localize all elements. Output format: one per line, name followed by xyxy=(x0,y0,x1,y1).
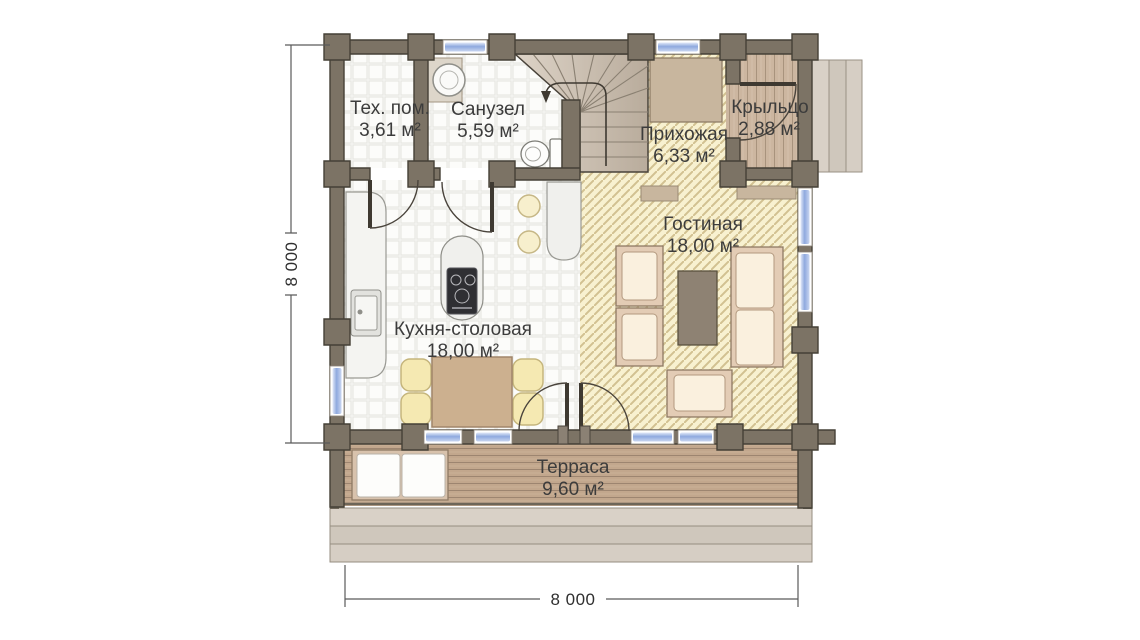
door-jamb xyxy=(580,426,590,444)
dimension-bottom: 8 000 xyxy=(345,565,798,609)
coffee-table xyxy=(678,271,717,345)
porch-steps xyxy=(812,60,862,172)
dining-chair xyxy=(401,359,431,391)
terrace-area: 9,60 м² xyxy=(542,479,604,500)
tech-room-label: Тех. пом. xyxy=(350,98,430,119)
terrace-label: Терраса xyxy=(537,457,610,478)
living-cabinet xyxy=(737,186,796,199)
bar-stool xyxy=(518,231,540,253)
terrace-bench xyxy=(352,450,448,500)
window xyxy=(658,43,698,52)
door-jamb xyxy=(558,426,568,444)
living-room-area: 18,00 м² xyxy=(667,236,739,257)
floor-plan-canvas: Тех. пом. 3,61 м² Санузел 5,59 м² Прихож… xyxy=(0,0,1140,640)
kitchen-island xyxy=(441,236,483,320)
terrace-steps xyxy=(330,508,812,562)
bathroom-label: Санузел xyxy=(451,99,525,120)
bathroom-area: 5,59 м² xyxy=(457,121,519,142)
hallway-area: 6,33 м² xyxy=(653,146,715,167)
toilet-tank xyxy=(550,139,562,169)
porch-label: Крыльцо xyxy=(731,97,809,118)
bench-cushion xyxy=(402,454,445,497)
bench-cushion xyxy=(357,454,400,497)
floor-plan-page: Тех. пом. 3,61 м² Санузел 5,59 м² Прихож… xyxy=(0,0,1140,640)
window xyxy=(633,433,672,442)
kitchen-counter xyxy=(346,192,386,378)
window xyxy=(445,43,485,52)
hallway-label: Прихожая xyxy=(640,124,728,145)
tech-room-area: 3,61 м² xyxy=(359,120,421,141)
dimension-left: 8 000 xyxy=(282,45,330,443)
dining-chair xyxy=(401,393,431,425)
dining-chair xyxy=(513,359,543,391)
window xyxy=(426,433,460,442)
bar-stool xyxy=(518,195,540,217)
window xyxy=(476,433,510,442)
kitchen-label: Кухня-столовая xyxy=(394,319,532,340)
hallway-closet xyxy=(650,58,722,122)
living-cabinet xyxy=(641,186,678,201)
window xyxy=(801,254,810,310)
porch-area: 2,88 м² xyxy=(738,119,800,140)
window xyxy=(801,190,810,244)
height-dimension: 8 000 xyxy=(282,241,301,286)
dining-chair xyxy=(513,393,543,425)
window xyxy=(680,433,712,442)
kitchen-area: 18,00 м² xyxy=(427,341,499,362)
width-dimension: 8 000 xyxy=(550,590,595,609)
washbasin xyxy=(433,64,465,96)
dining-table xyxy=(432,357,512,427)
window xyxy=(333,368,342,414)
living-room-label: Гостиная xyxy=(663,214,743,235)
